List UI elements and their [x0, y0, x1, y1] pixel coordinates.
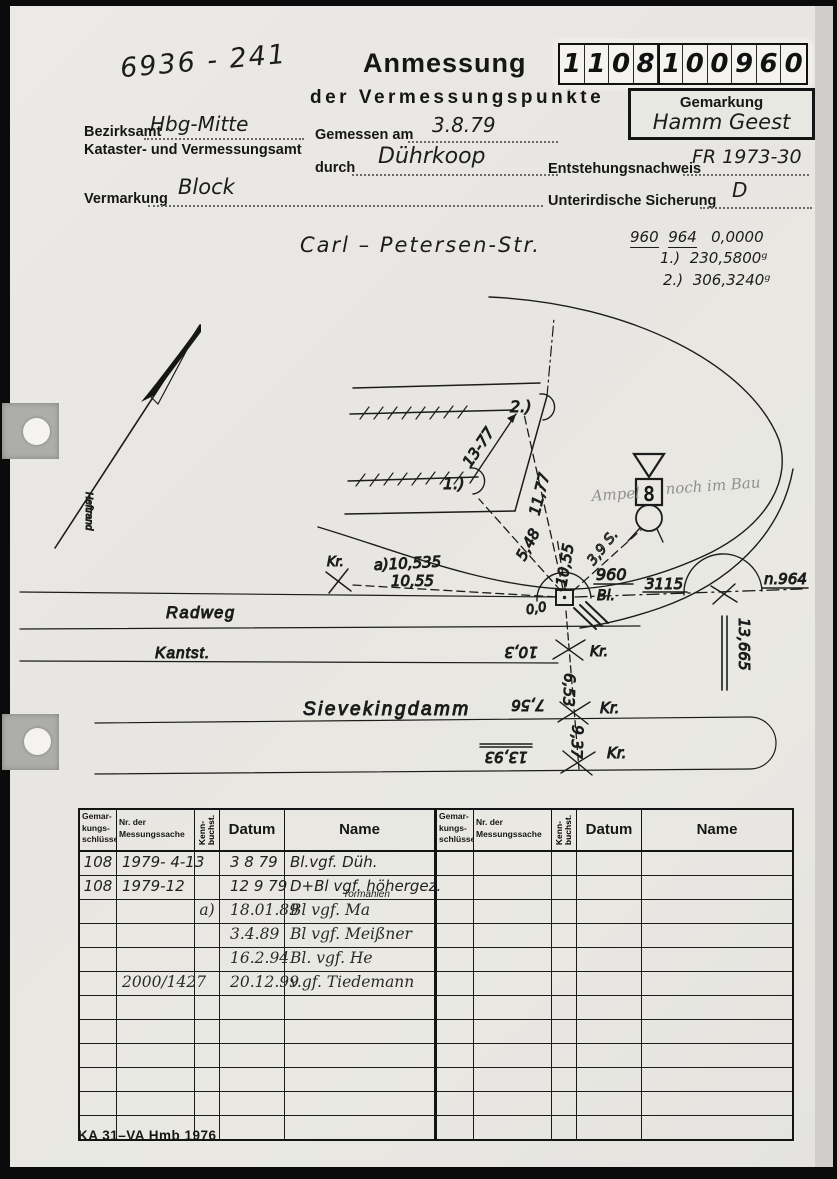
table-row: 2000/142720.12.99v.gf. Tiedemann	[80, 972, 434, 996]
table-cell	[437, 948, 474, 971]
table-cell	[117, 1020, 195, 1043]
table-cell	[437, 1092, 474, 1115]
point-1-label: 1.)	[443, 474, 465, 493]
table-row	[437, 1068, 792, 1092]
table-cell: 2000/1427	[117, 972, 195, 995]
table-cell	[552, 1020, 577, 1043]
table-cell	[437, 900, 474, 923]
table-cell: 3 8 79	[220, 852, 285, 875]
table-cell	[80, 1068, 117, 1091]
street-lines	[20, 592, 776, 774]
table-cell	[195, 1068, 220, 1091]
table-row	[437, 1092, 792, 1116]
table-cell	[220, 996, 285, 1019]
sievekingdamm-label: Sievekingdamm	[303, 699, 471, 720]
table-row	[80, 1068, 434, 1092]
table-cell	[195, 1092, 220, 1115]
table-cell	[552, 972, 577, 995]
table-cell	[577, 1020, 642, 1043]
label-n964: n.964	[764, 570, 807, 588]
table-cell: 16.2.94	[220, 948, 285, 971]
table-cell	[577, 1068, 642, 1091]
table-cell	[437, 876, 474, 899]
table-cell	[474, 1044, 552, 1067]
table-cell	[552, 876, 577, 899]
table-cell	[577, 1116, 642, 1139]
table-cell: Bl.vgf. Düh.	[285, 852, 434, 875]
table-row: 3.4.89Bl vgf. Meißner	[80, 924, 434, 948]
dist-756: 7,56	[511, 696, 544, 714]
table-cell	[577, 972, 642, 995]
station-zero: 0,0	[525, 600, 548, 618]
header-kennbuchst: Kenn- buchst.	[195, 810, 220, 850]
point-2-label: 2.)	[510, 397, 532, 416]
table-cell: Bl vgf. Ma	[285, 900, 434, 923]
table-row	[80, 1020, 434, 1044]
table-row: 16.2.94Bl. vgf. He	[80, 948, 434, 972]
table-cell: 1979- 4-13	[117, 852, 195, 875]
table-row: 1081979- 4-133 8 79Bl.vgf. Düh.	[80, 852, 434, 876]
table-cell: 20.12.99	[220, 972, 285, 995]
kr-label-1: Kr.	[590, 644, 608, 660]
table-cell: 1979-12	[117, 876, 195, 899]
table-cell	[577, 1044, 642, 1067]
table-cell	[577, 1092, 642, 1115]
table-cell	[474, 1116, 552, 1139]
table-cell	[285, 1068, 434, 1091]
header-gemarkungsschluessel: Gemar- kungs- schlüssel	[437, 810, 474, 850]
table-cell	[285, 1044, 434, 1067]
table-cell: 12 9 79	[220, 876, 285, 899]
table-cell	[577, 900, 642, 923]
table-row	[437, 852, 792, 876]
table-body	[437, 852, 792, 1139]
table-cell	[642, 1116, 792, 1139]
table-cell	[80, 972, 117, 995]
table-cell	[117, 1092, 195, 1115]
station-number: 960	[596, 565, 627, 584]
table-cell	[80, 924, 117, 947]
pencil-39s: 3,9 S.	[584, 527, 621, 568]
table-cell: a)	[195, 900, 220, 923]
table-row	[80, 996, 434, 1020]
table-cell	[117, 1044, 195, 1067]
table-cell	[552, 1092, 577, 1115]
table-cell	[642, 852, 792, 875]
table-cell	[437, 972, 474, 995]
table-cell	[195, 948, 220, 971]
table-cell	[642, 996, 792, 1019]
table-row	[437, 948, 792, 972]
table-cell	[285, 1092, 434, 1115]
dist-3115: 3115	[645, 575, 683, 593]
kr-label-2: Kr.	[600, 699, 619, 717]
table-cell	[552, 852, 577, 875]
table-cell	[437, 1116, 474, 1139]
table-cell	[642, 900, 792, 923]
dist-1055-ray: 10,55	[552, 542, 577, 587]
table-cell	[474, 1068, 552, 1091]
table-cell: Bl. vgf. He	[285, 948, 434, 971]
table-cell	[474, 876, 552, 899]
table-cell	[474, 948, 552, 971]
table-cell: 18.01.89	[220, 900, 285, 923]
table-cell	[220, 1020, 285, 1043]
table-cell	[552, 996, 577, 1019]
header-messungssache: Nr. der Messungssache	[474, 810, 552, 850]
table-row	[437, 996, 792, 1020]
scanned-document: 6936 - 241 Anmessung der Vermessungspunk…	[0, 0, 837, 1179]
table-cell	[117, 996, 195, 1019]
kantst-label: Kantst.	[155, 645, 210, 662]
table-cell	[474, 996, 552, 1019]
table-row: a)18.01.89Bl vgf. Ma	[80, 900, 434, 924]
table-cell	[285, 996, 434, 1019]
table-cell	[577, 924, 642, 947]
table-cell	[117, 1068, 195, 1091]
label-13-77: 13-77	[459, 424, 499, 471]
table-cell	[117, 948, 195, 971]
table-header: Gemar- kungs- schlüssel Nr. der Messungs…	[437, 810, 792, 852]
pencil-noch-im-bau: noch im Bau	[665, 473, 761, 498]
pencil-ampel: Ampel	[589, 484, 641, 505]
dist-13665: 13,665	[735, 618, 753, 671]
table-cell	[220, 1116, 285, 1139]
table-row	[437, 972, 792, 996]
table-cell: 108	[80, 876, 117, 899]
table-cell	[474, 924, 552, 947]
table-cell: v.gf. Tiedemann	[285, 972, 434, 995]
table-cell	[642, 1092, 792, 1115]
dist-1393: 13,93	[485, 748, 528, 766]
table-cell	[437, 1044, 474, 1067]
table-header: Gemar- kungs- schlüssel Nr. der Messungs…	[80, 810, 434, 852]
table-cell	[220, 1092, 285, 1115]
table-cell: 3.4.89	[220, 924, 285, 947]
table-cell	[80, 1044, 117, 1067]
dist-1177: 11,77	[526, 471, 554, 517]
north-arrow	[55, 324, 201, 548]
kr-label-a: Kr.	[327, 555, 344, 570]
table-cell	[437, 852, 474, 875]
table-cell	[642, 876, 792, 899]
table-cell	[474, 1092, 552, 1115]
heftrand-label: Heftrand	[83, 492, 94, 531]
table-cell	[437, 1020, 474, 1043]
dist-548: 5,48	[512, 526, 544, 564]
table-cell	[642, 1020, 792, 1043]
table-cell	[80, 900, 117, 923]
table-cell	[474, 1020, 552, 1043]
header-gemarkungsschluessel: Gemar- kungs- schlüssel	[80, 810, 117, 850]
dist-a-1055: 10,55	[391, 572, 434, 590]
table-cell	[552, 900, 577, 923]
table-cell	[80, 996, 117, 1019]
table-cell	[642, 948, 792, 971]
table-cell	[437, 1068, 474, 1091]
table-cell	[642, 924, 792, 947]
table-row	[437, 924, 792, 948]
table-row	[437, 876, 792, 900]
table-cell	[117, 900, 195, 923]
header-kennbuchst: Kenn- buchst.	[552, 810, 577, 850]
dist-103: 10,3	[504, 643, 537, 661]
left-cross-mark	[326, 569, 351, 593]
table-row	[80, 1092, 434, 1116]
table-body: 1081979- 4-133 8 79Bl.vgf. Düh.1081979-1…	[80, 852, 434, 1139]
table-row: 1081979-1212 9 79D+Bl vgf. höhergez.Torm…	[80, 876, 434, 900]
table-cell: 108	[80, 852, 117, 875]
measurement-log-table-right: Gemar- kungs- schlüssel Nr. der Messungs…	[435, 808, 794, 1141]
table-cell	[577, 948, 642, 971]
header-datum: Datum	[220, 810, 285, 850]
table-cell	[195, 996, 220, 1019]
table-cell	[642, 1068, 792, 1091]
table-cell	[577, 996, 642, 1019]
table-cell	[195, 1020, 220, 1043]
table-row	[80, 1044, 434, 1068]
table-cell	[552, 924, 577, 947]
table-cell	[642, 972, 792, 995]
table-cell	[80, 948, 117, 971]
table-cell	[80, 1092, 117, 1115]
table-cell	[577, 852, 642, 875]
header-name: Name	[642, 810, 792, 850]
header-messungssache: Nr. der Messungssache	[117, 810, 195, 850]
table-cell	[577, 876, 642, 899]
table-cell: Bl vgf. Meißner	[285, 924, 434, 947]
header-datum: Datum	[577, 810, 642, 850]
table-cell	[117, 924, 195, 947]
table-cell	[195, 852, 220, 875]
table-cell	[80, 1020, 117, 1043]
kr-label-3: Kr.	[607, 744, 626, 762]
table-cell	[437, 996, 474, 1019]
table-row	[437, 1044, 792, 1068]
measurement-log-table-left: Gemar- kungs- schlüssel Nr. der Messungs…	[78, 808, 436, 1141]
header-name: Name	[285, 810, 434, 850]
table-cell	[220, 1044, 285, 1067]
dist-937: 9,37	[567, 725, 586, 759]
table-cell	[195, 1044, 220, 1067]
table-cell	[195, 924, 220, 947]
table-row	[437, 900, 792, 924]
table-row	[437, 1020, 792, 1044]
table-cell	[285, 1020, 434, 1043]
dist-653: 6,53	[559, 673, 578, 707]
table-cell	[552, 948, 577, 971]
table-row	[437, 1116, 792, 1139]
table-cell	[195, 876, 220, 899]
table-cell	[552, 1068, 577, 1091]
table-cell	[220, 1068, 285, 1091]
table-cell	[474, 972, 552, 995]
table-cell	[552, 1044, 577, 1067]
traffic-light-number: 8	[643, 482, 655, 506]
table-cell	[552, 1116, 577, 1139]
table-cell: D+Bl vgf. höhergez.Tormählen	[285, 876, 441, 899]
table-cell	[642, 1044, 792, 1067]
table-cell	[437, 924, 474, 947]
form-id-footer: KA 31–VA Hmb 1976	[78, 1128, 217, 1143]
table-cell	[285, 1116, 434, 1139]
radweg-label: Radweg	[166, 604, 236, 622]
table-cell	[474, 852, 552, 875]
table-cell	[474, 900, 552, 923]
table-cell	[195, 972, 220, 995]
